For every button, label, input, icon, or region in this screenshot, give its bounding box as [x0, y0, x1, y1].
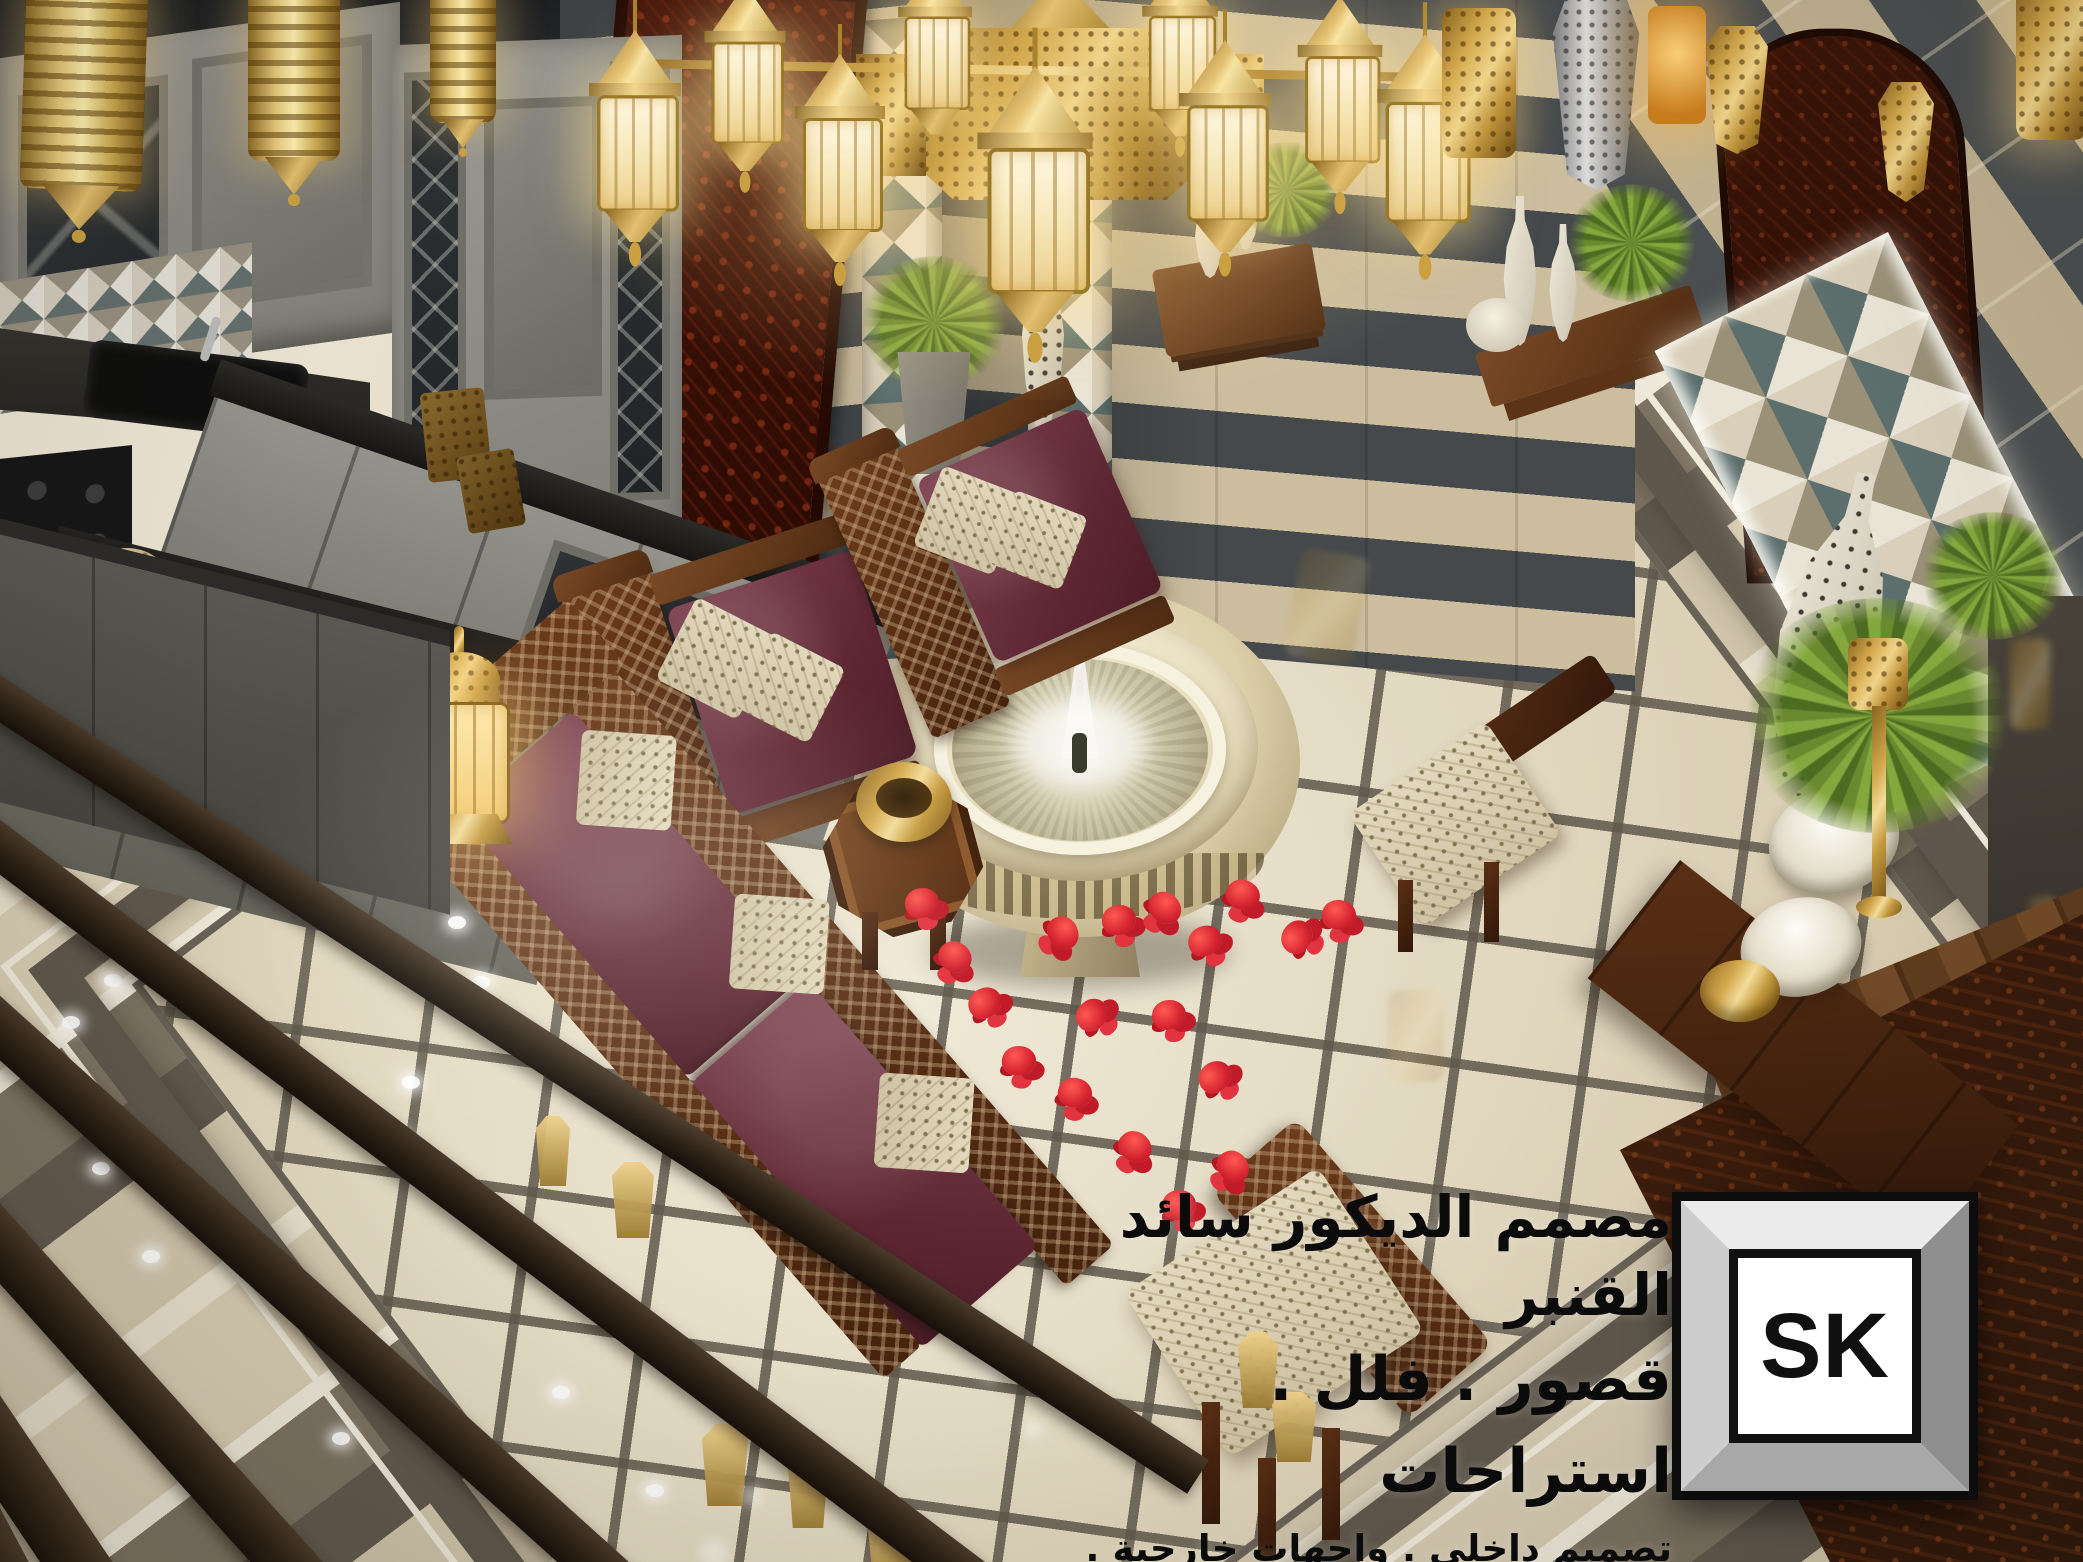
watermark-designer-line: مصمم الديكور سائد القنبر: [1040, 1178, 1672, 1334]
sk-logo-text: SK: [1729, 1249, 1921, 1443]
watermark-scope-line: تصميم داخلي . واجهات خارجية . حدائق: [1040, 1518, 1672, 1562]
sk-logo: SK: [1672, 1192, 1978, 1500]
watermark: مصمم الديكور سائد القنبر قصور . فلل . اس…: [1040, 1178, 1672, 1562]
watermark-services-line: قصور . فلل . استراحات: [1040, 1334, 1672, 1518]
interior-rendering-scene: مصمم الديكور سائد القنبر قصور . فلل . اس…: [0, 0, 2083, 1562]
sk-logo-frame: SK: [1681, 1201, 1969, 1491]
